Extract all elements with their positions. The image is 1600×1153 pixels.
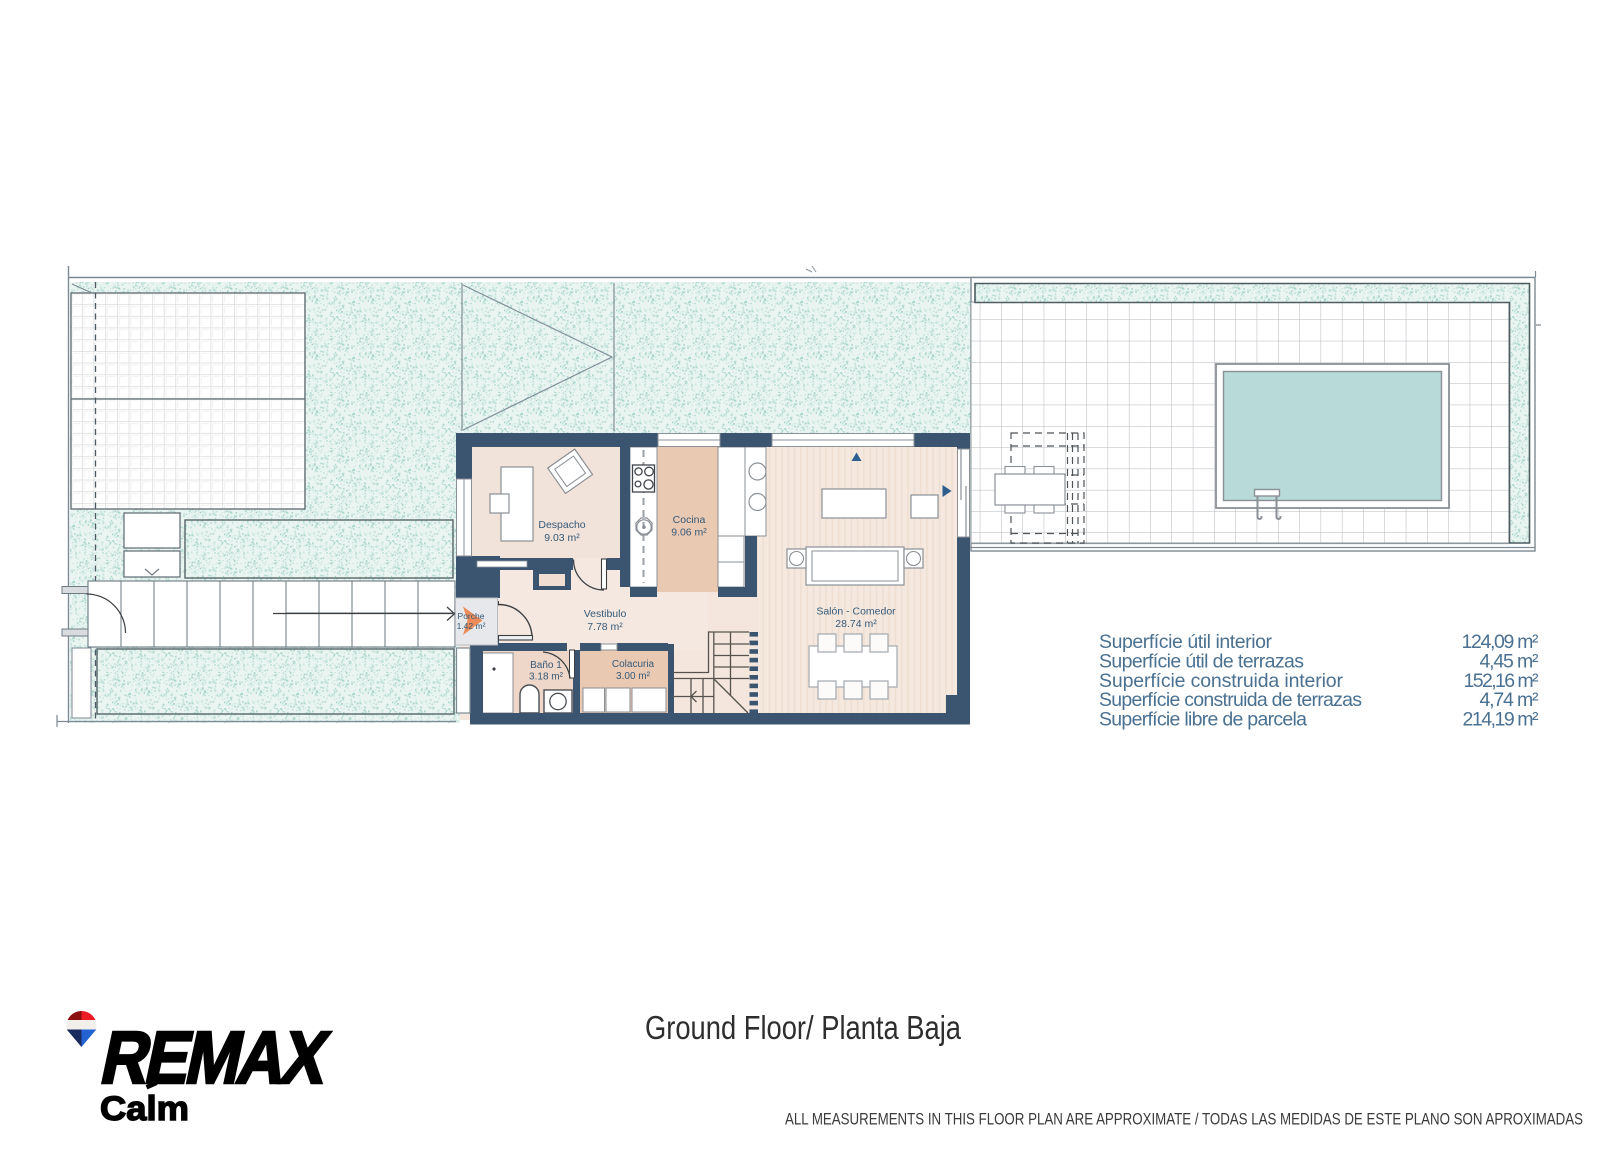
svg-text:9.03 m²: 9.03 m² xyxy=(544,532,580,544)
svg-text:Ground Floor/ Planta Baja: Ground Floor/ Planta Baja xyxy=(645,1009,962,1046)
svg-text:Calm: Calm xyxy=(100,1090,189,1128)
svg-text:ALL MEASUREMENTS IN THIS FLOOR: ALL MEASUREMENTS IN THIS FLOOR PLAN ARE … xyxy=(785,1111,1583,1129)
svg-text:Despacho: Despacho xyxy=(538,519,585,531)
svg-text:7.78 m²: 7.78 m² xyxy=(587,621,623,633)
svg-text:9.06 m²: 9.06 m² xyxy=(671,527,707,539)
svg-text:Superfície libre de parcela: Superfície libre de parcela xyxy=(1099,709,1307,731)
svg-text:REMAX: REMAX xyxy=(95,1016,337,1099)
svg-text:214,19 m²: 214,19 m² xyxy=(1463,709,1540,731)
svg-text:Salón - Comedor: Salón - Comedor xyxy=(816,606,896,618)
svg-text:Cocina: Cocina xyxy=(673,514,706,526)
svg-text:3.00 m²: 3.00 m² xyxy=(616,671,651,682)
svg-text:28.74 m²: 28.74 m² xyxy=(835,618,877,630)
svg-text:Baño 1: Baño 1 xyxy=(530,660,562,671)
svg-text:Porche: Porche xyxy=(458,611,485,621)
svg-text:Vestibulo: Vestibulo xyxy=(584,608,627,620)
svg-text:3.18 m²: 3.18 m² xyxy=(529,672,564,683)
svg-text:Colacuria: Colacuria xyxy=(612,659,655,670)
svg-text:1.42 m²: 1.42 m² xyxy=(457,621,486,631)
